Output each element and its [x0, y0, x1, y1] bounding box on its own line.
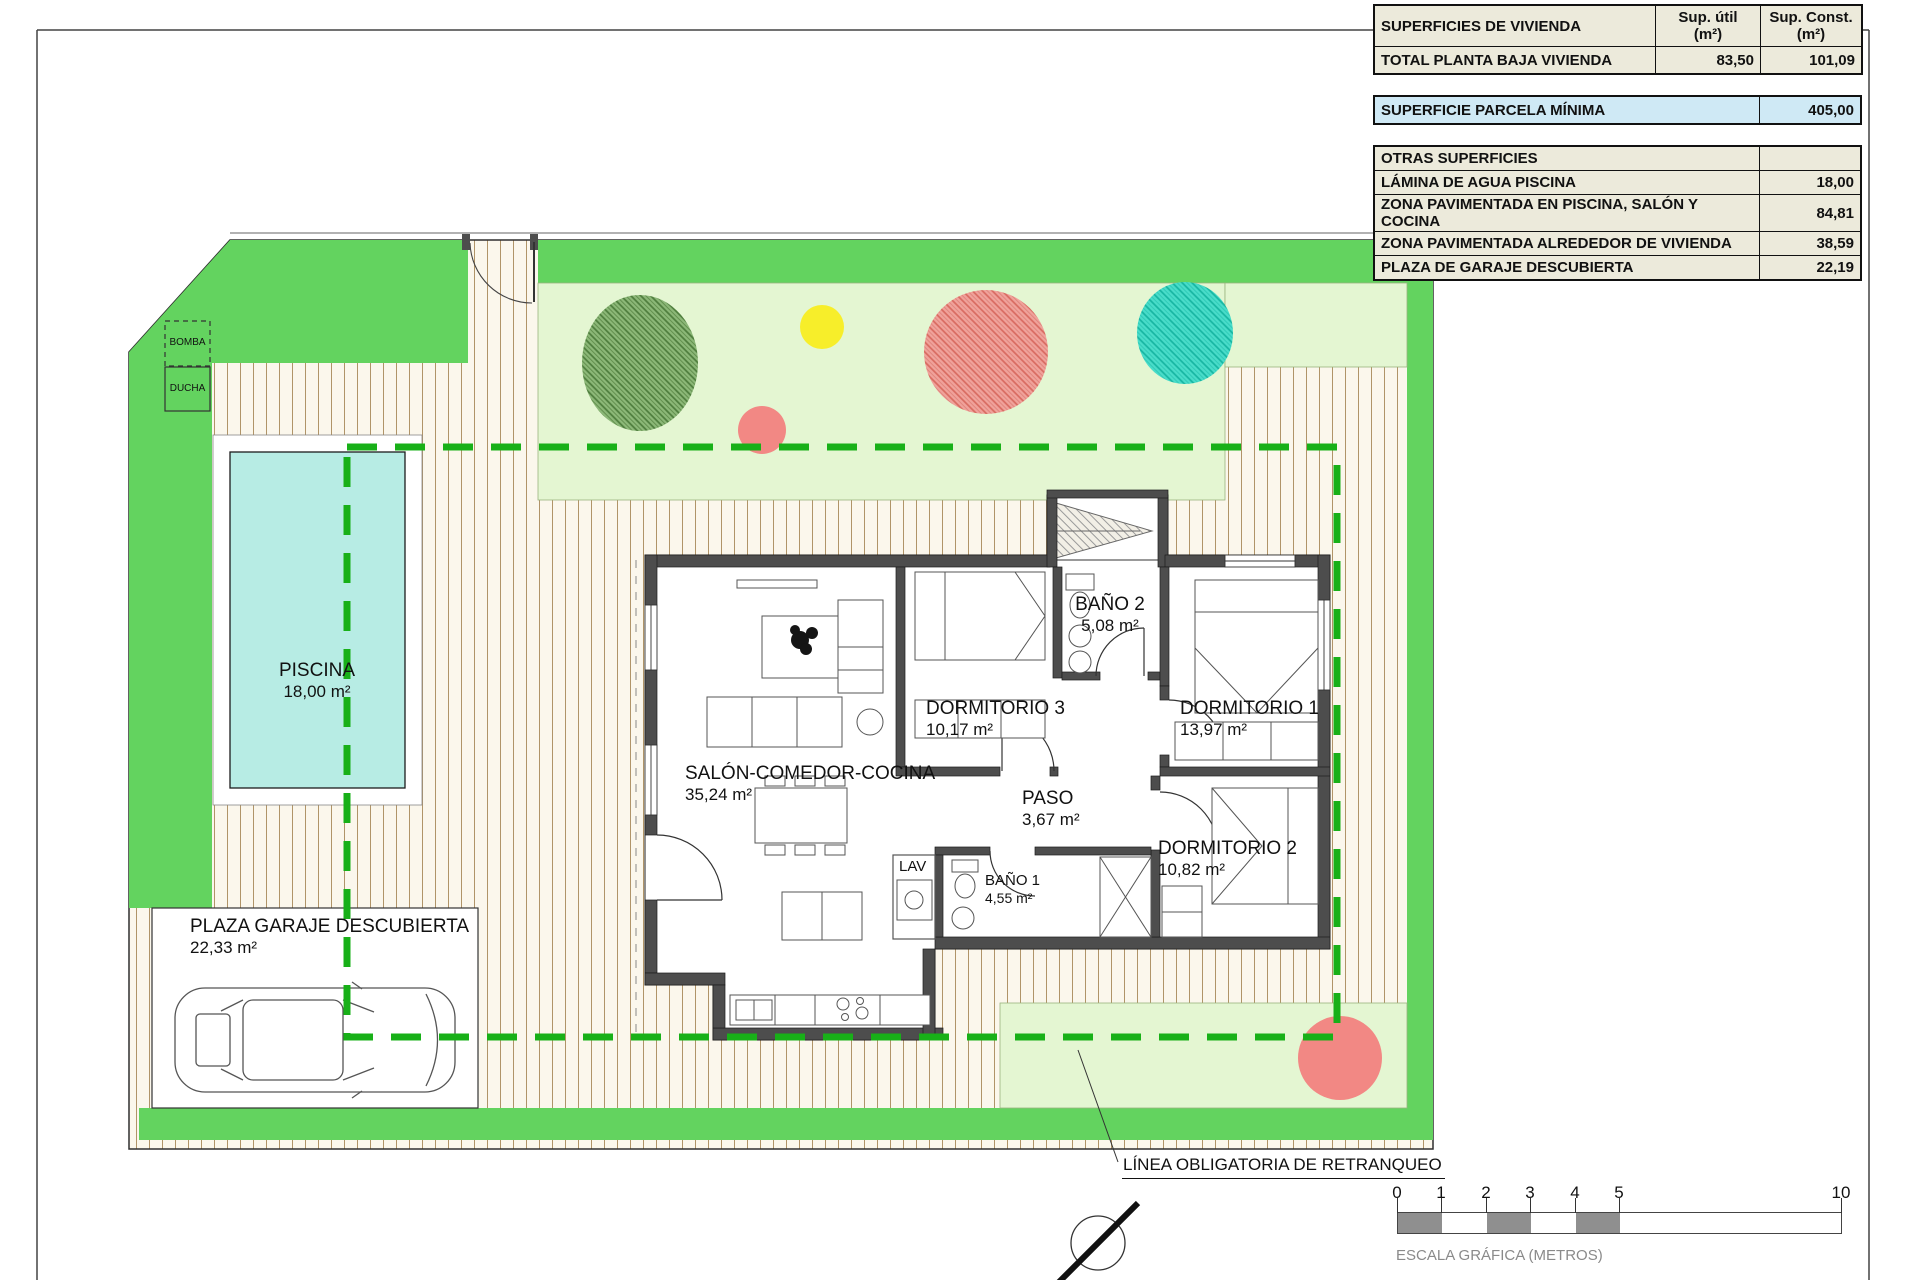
room-label-dormitorio2: DORMITORIO 2 10,82 m²	[1158, 838, 1297, 880]
north-arrow-icon	[1057, 1203, 1138, 1280]
areas-table-title: SUPERFICIES DE VIVIENDA	[1374, 5, 1656, 47]
parcela-table: SUPERFICIE PARCELA MÍNIMA 405,00	[1373, 95, 1862, 125]
tree-red-icon	[924, 290, 1048, 414]
shrub-red-bottom-icon	[1298, 1016, 1382, 1100]
scale-tick-10: 10	[1826, 1183, 1856, 1203]
bomba-label: BOMBA	[165, 337, 210, 349]
pool-name: PISCINA	[237, 660, 397, 682]
table-row: ZONA PAVIMENTADA ALREDEDOR DE VIVIENDA 3…	[1374, 232, 1861, 256]
table-row: SUPERFICIE PARCELA MÍNIMA 405,00	[1374, 96, 1861, 124]
lawn-right-strip	[1407, 240, 1433, 1140]
lawn-top-strip	[538, 240, 1433, 283]
table-row: PLAZA DE GARAJE DESCUBIERTA 22,19	[1374, 256, 1861, 281]
col-sup-util: Sup. útil (m²)	[1656, 5, 1761, 47]
pool-label: PISCINA 18,00 m²	[237, 660, 397, 702]
lawn-left-strip	[129, 363, 212, 908]
tree-teal-icon	[1137, 282, 1233, 384]
room-label-paso: PASO 3,67 m²	[1022, 788, 1080, 830]
scale-caption: ESCALA GRÁFICA (METROS)	[1396, 1247, 1603, 1264]
areas-table: SUPERFICIES DE VIVIENDA Sup. útil (m²) S…	[1373, 4, 1863, 75]
table-row: OTRAS SUPERFICIES	[1374, 146, 1861, 171]
tree-green-icon	[582, 295, 698, 431]
scale-tick-0: 0	[1382, 1183, 1412, 1203]
otras-superficies-table: OTRAS SUPERFICIES LÁMINA DE AGUA PISCINA…	[1373, 145, 1862, 281]
room-label-lav: LAV	[899, 858, 926, 876]
pool	[213, 435, 422, 805]
table-row: LÁMINA DE AGUA PISCINA 18,00	[1374, 171, 1861, 195]
site-plan-sheet: PISCINA 18,00 m² SALÓN-COMEDOR-COCINA 35…	[0, 0, 1920, 1280]
room-label-bano2: BAÑO 2 5,08 m²	[1062, 594, 1158, 636]
scale-tick-4: 4	[1560, 1183, 1590, 1203]
pool-area: 18,00 m²	[237, 682, 397, 702]
ducha-label: DUCHA	[165, 383, 210, 395]
garage-label: PLAZA GARAJE DESCUBIERTA 22,33 m²	[190, 916, 469, 958]
room-label-dormitorio1: DORMITORIO 1 13,97 m²	[1180, 698, 1319, 740]
garden-top-right	[1225, 283, 1407, 367]
retranqueo-label: LÍNEA OBLIGATORIA DE RETRANQUEO	[1122, 1155, 1445, 1179]
scale-tick-3: 3	[1515, 1183, 1545, 1203]
room-label-bano1: BAÑO 1 4,55 m²	[985, 872, 1040, 906]
room-label-dormitorio3: DORMITORIO 3 10,17 m²	[926, 698, 1065, 740]
lawn-bottom-strip	[139, 1108, 1433, 1140]
col-sup-const: Sup. Const. (m²)	[1761, 5, 1863, 47]
scale-tick-1: 1	[1426, 1183, 1456, 1203]
table-row: TOTAL PLANTA BAJA VIVIENDA 83,50 101,09	[1374, 47, 1862, 75]
tree-yellow-icon	[800, 305, 844, 349]
table-row: ZONA PAVIMENTADA EN PISCINA, SALÓN Y COC…	[1374, 195, 1861, 232]
scale-bar	[1397, 1212, 1842, 1234]
scale-tick-5: 5	[1604, 1183, 1634, 1203]
room-label-salon: SALÓN-COMEDOR-COCINA 35,24 m²	[685, 763, 935, 805]
pool-water	[230, 452, 405, 788]
scale-tick-2: 2	[1471, 1183, 1501, 1203]
